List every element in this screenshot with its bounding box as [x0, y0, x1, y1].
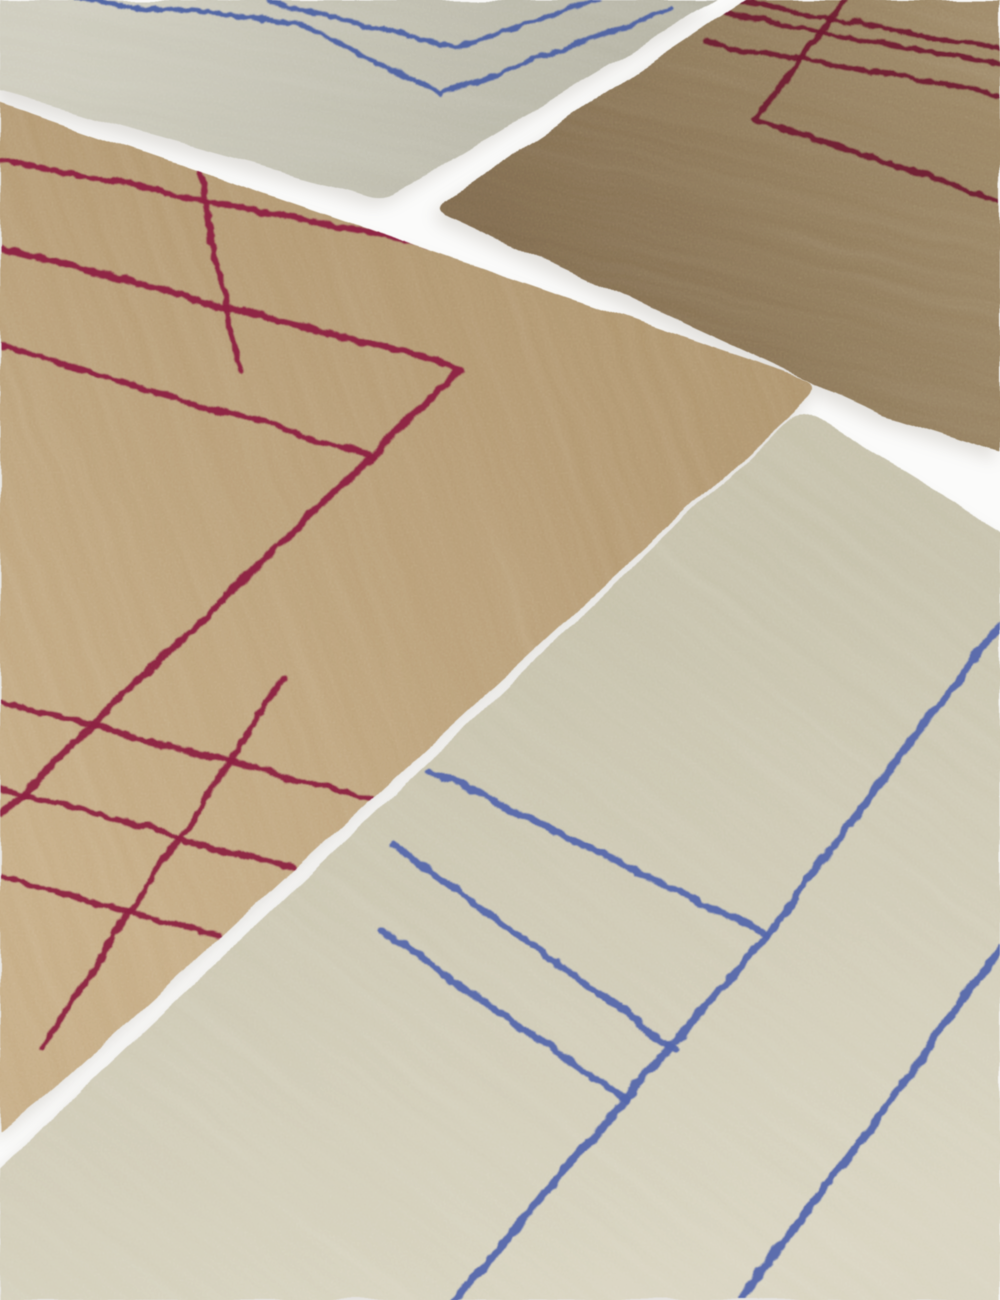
rug-photo: [0, 0, 1000, 1300]
scene-svg: [0, 0, 1000, 1300]
